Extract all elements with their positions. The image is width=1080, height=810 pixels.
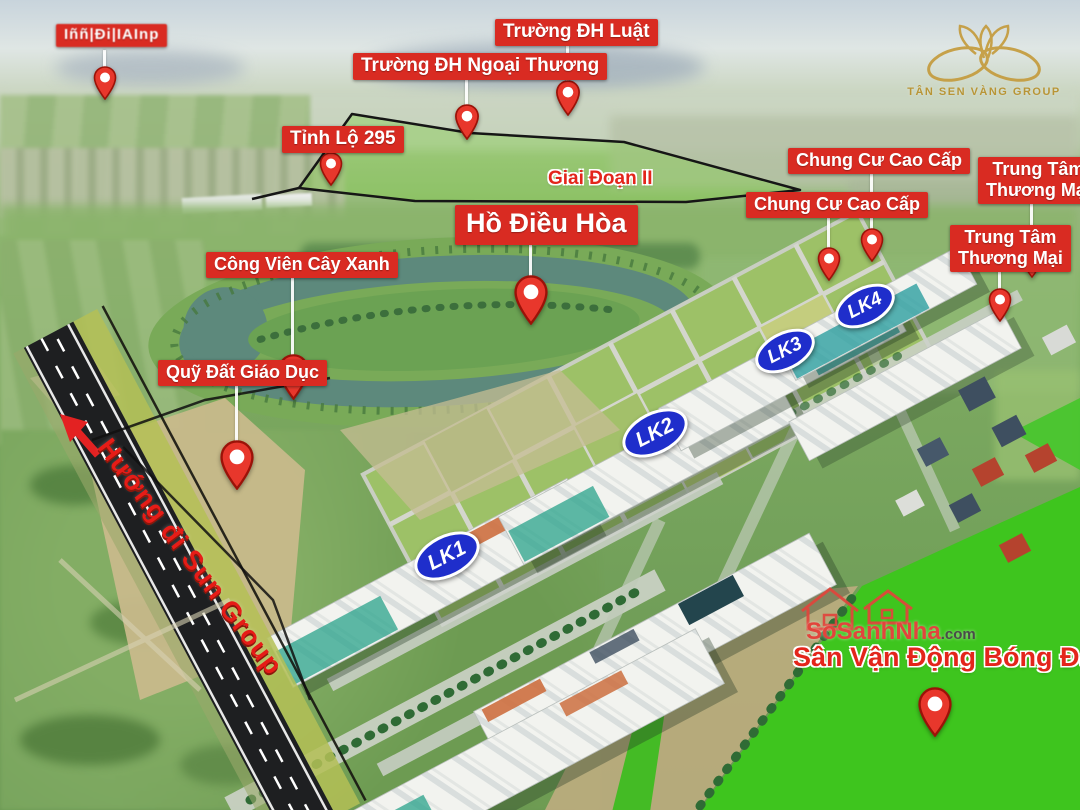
aerial-project-map: SoSanhNha.com TÂN SEN VÀNG GROUP Iññ|Đi|… [0,0,1080,810]
map-pin-icon [454,104,480,140]
map-pin-icon [988,288,1012,322]
badge-line: Thương Mại [958,248,1063,269]
map-pin-icon [93,66,117,100]
badge-line: Trung Tâm [958,227,1063,248]
map-pin-icon [860,228,884,262]
badge-tinh-lo-295: Tỉnh Lộ 295 [282,126,404,153]
badge-trung-tam-1: Trung Tâm Thương Mại [978,157,1080,204]
distorted-badge: Iññ|Đi|IAInp [56,24,167,47]
connector-line [827,216,830,251]
map-pin-icon [319,152,343,186]
watermark-brand: SoSanhNha [806,618,941,645]
connector-line [529,243,532,279]
company-logo-icon [925,26,1042,86]
label-san-van-dong: Sân Vận Động Bóng Đá [793,642,1080,673]
badge-ho-dieu-hoa: Hồ Điều Hòa [455,205,638,245]
watermark-suffix: .com [941,626,976,643]
map-pin-icon [817,247,841,281]
badge-trung-tam-2: Trung Tâm Thương Mại [950,225,1071,272]
company-logo-text: TÂN SEN VÀNG GROUP [894,86,1074,98]
badge-quy-dat-giao-duc: Quỹ Đất Giáo Dục [158,360,327,386]
connector-line [291,274,294,358]
map-pin-icon [513,275,549,325]
badge-line: Thương Mại [986,180,1080,201]
map-pin-icon [917,687,953,737]
badge-chung-cu-1: Chung Cư Cao Cấp [788,148,970,174]
map-pin-icon [219,440,255,490]
connector-line [235,386,238,444]
label-giai-doan-2: Giai Đoạn II [548,168,653,190]
badge-cong-vien-cay-xanh: Công Viên Cây Xanh [206,252,398,278]
map-pin-icon [555,80,581,116]
badge-dh-luat: Trường ĐH Luật [495,19,658,46]
badge-dh-ngoai-thuong: Trường ĐH Ngoại Thương [353,53,607,80]
badge-chung-cu-2: Chung Cư Cao Cấp [746,192,928,218]
badge-line: Trung Tâm [986,159,1080,180]
